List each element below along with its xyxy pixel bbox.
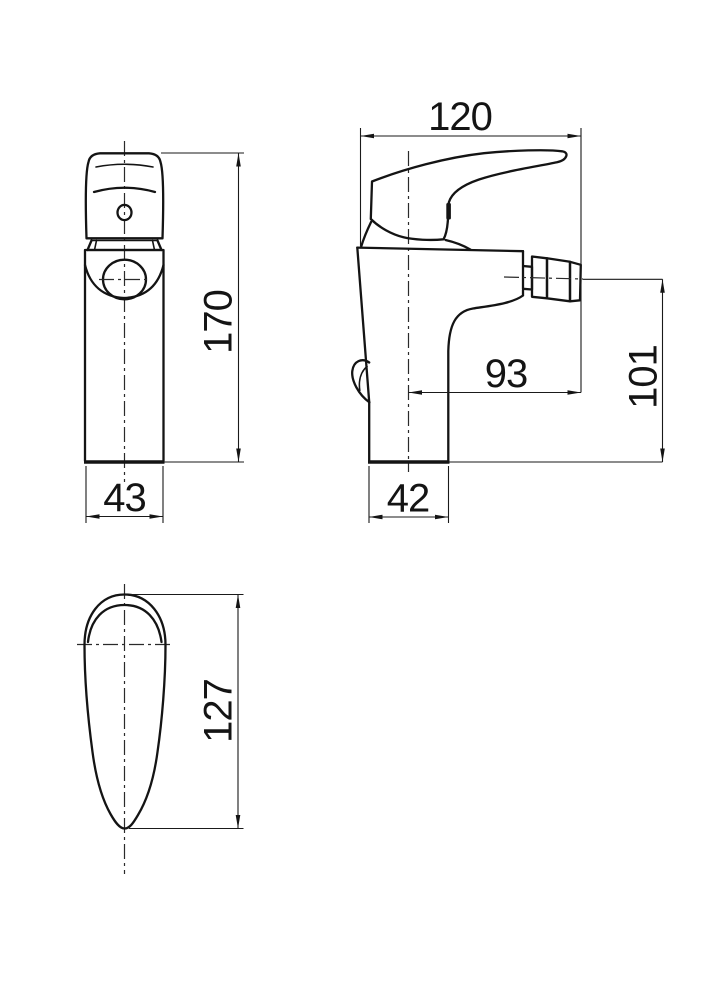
side-dome-left-arc (361, 222, 371, 247)
side-spout (504, 257, 583, 302)
technical-drawing: 170 43 (0, 0, 707, 1000)
side-lever-outline (371, 150, 567, 240)
dim-label-42: 42 (387, 477, 430, 521)
dim-label-120: 120 (428, 95, 492, 139)
dim-label-127: 127 (197, 679, 241, 743)
arrow-left-icon (409, 390, 423, 395)
dimension-overall-height: 170 (161, 153, 244, 462)
dimension-base-depth: 42 (369, 466, 449, 523)
dimension-spout-projection: 93 (409, 352, 582, 396)
dimension-overall-length: 120 (361, 95, 582, 393)
front-cap-arc-upper (96, 164, 153, 167)
arrow-right-icon (568, 390, 582, 395)
front-cap-arc-lower (94, 188, 155, 192)
drawing-sheet: 170 43 (0, 0, 707, 1000)
dim-label-43: 43 (103, 476, 146, 520)
arrow-up-icon (660, 279, 665, 293)
arrow-left-icon (86, 514, 100, 519)
arrow-down-icon (236, 449, 241, 463)
arrow-up-icon (236, 153, 241, 167)
dim-label-101: 101 (622, 345, 666, 409)
arrow-up-icon (236, 595, 241, 609)
arrow-down-icon (236, 815, 241, 829)
spout-end-cap (570, 262, 581, 302)
side-body-left-edge (357, 248, 369, 461)
front-view: 170 43 (84, 141, 244, 523)
handle-plan-view: 127 (77, 584, 244, 874)
dimension-spout-height: 101 (583, 279, 666, 462)
arrow-right-icon (150, 514, 164, 519)
dim-label-93: 93 (485, 352, 528, 396)
dim-label-170: 170 (197, 290, 241, 354)
side-dome-right-arc (446, 240, 471, 250)
dimension-handle-length: 127 (129, 595, 244, 829)
arrow-down-icon (660, 449, 665, 463)
arrow-left-icon (369, 515, 383, 520)
spout-body (547, 258, 570, 301)
side-view: 120 93 101 42 (352, 95, 665, 523)
side-deck-line (357, 248, 523, 252)
side-lever-notch (446, 203, 451, 220)
arrow-right-icon (435, 515, 449, 520)
arrow-left-icon (361, 134, 375, 139)
arrow-right-icon (568, 134, 582, 139)
